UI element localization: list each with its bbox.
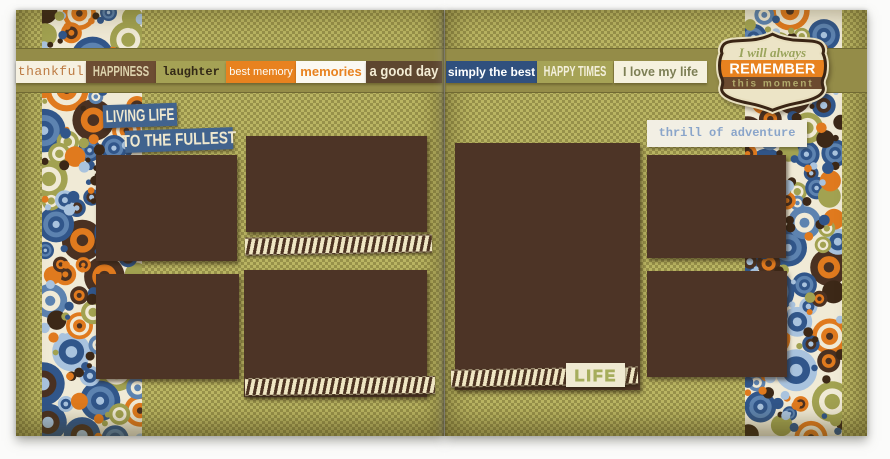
svg-text:LIFE: LIFE bbox=[575, 368, 618, 385]
svg-text:REMEMBER: REMEMBER bbox=[729, 62, 816, 78]
svg-text:I will always: I will always bbox=[738, 45, 806, 60]
svg-text:this moment: this moment bbox=[732, 79, 813, 90]
